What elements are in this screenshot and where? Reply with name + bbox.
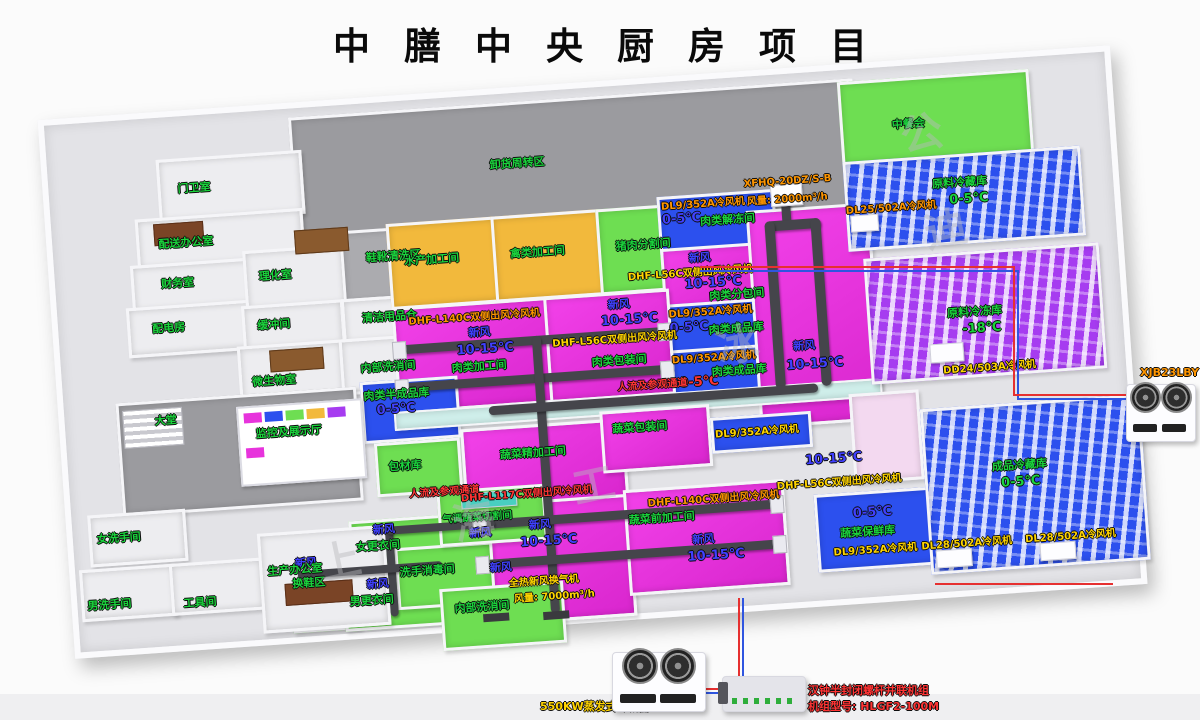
room-label-men-change: 男更衣间	[349, 590, 394, 609]
model-block-magenta2	[246, 447, 265, 458]
pipe-red-3	[1013, 394, 1128, 396]
fresh-air-4: 新风	[607, 295, 630, 312]
pipe-blue-2	[1017, 270, 1019, 398]
room-label-finance: 财务室	[161, 274, 195, 292]
pipe-red-5	[738, 598, 740, 678]
condenser-louver-2	[660, 694, 696, 703]
fresh-air-2: 新风	[793, 336, 816, 353]
eq-label-screw-model: 机组型号: HLGF2-100M	[808, 698, 939, 714]
fresh-air-3: 新风	[468, 323, 491, 340]
temp-finished-cold: 0-5℃	[1001, 473, 1041, 491]
room-label-tool: 工具间	[183, 593, 217, 611]
fresh-air-10: 新风	[489, 558, 512, 575]
room-label-micro: 微生物室	[252, 371, 297, 390]
display-model	[236, 398, 367, 487]
model-block-yellow	[306, 408, 325, 419]
temp-meat-semi: 0-5℃	[376, 400, 416, 418]
specimen-shelf	[269, 347, 324, 373]
room-label-women-change: 女更衣间	[355, 536, 400, 555]
screw-unit	[722, 676, 806, 712]
model-block-green	[285, 409, 304, 420]
temp-veg-store: 0-5℃	[852, 504, 892, 522]
pipe-red-1	[700, 266, 1015, 268]
room-label-women-wc: 女洗手间	[96, 528, 141, 547]
bookshelf	[294, 227, 350, 255]
pipe-red-4	[935, 583, 1113, 585]
eq-label-screw-unit: 汉钟半封闭螺杆并联机组	[808, 682, 929, 698]
dl25-unit	[850, 214, 879, 233]
model-block-blue	[264, 411, 283, 422]
pipe-blue-5	[742, 598, 744, 678]
room-men-wc	[79, 564, 178, 623]
floorplan: 卸货周转区 门卫室 配送办公室 财务室 配电房 理化室 缓冲间 微生物室 鞋靴清…	[37, 45, 1147, 659]
pipe-blue-1	[700, 270, 1019, 272]
condenser-fan-2	[660, 648, 696, 684]
fresh-air-9: 新风	[366, 575, 389, 592]
stage: 中膳中央厨房项目 卸货周转区 门卫室 配送办公室 财务室 配电房 理化室 缓冲间…	[0, 0, 1200, 720]
room-label-guard: 门卫室	[177, 178, 211, 196]
fresh-air-8: 新风	[372, 520, 395, 537]
xjb-louver-2	[1162, 424, 1186, 432]
condenser-fan-1	[622, 648, 658, 684]
xjb-fan-1	[1130, 382, 1161, 413]
room-label-lab: 理化室	[258, 266, 292, 284]
room-veg-pack	[599, 404, 713, 474]
screw-unit-cap	[718, 682, 728, 704]
room-label-pack-material: 包材库	[388, 456, 422, 474]
xjb-louver-1	[1133, 424, 1157, 432]
model-block-magenta	[243, 412, 262, 423]
condenser-louver-1	[620, 694, 656, 703]
room-label-buffer: 缓冲间	[257, 315, 291, 333]
fresh-air-6: 新风	[692, 530, 715, 547]
room-label-lobby: 大堂	[154, 411, 177, 428]
xjb-fan-2	[1161, 382, 1192, 413]
temp-thaw: 0-5℃	[661, 210, 701, 228]
pipe-red-2	[1013, 266, 1015, 396]
model-block-purple	[327, 406, 346, 417]
diffuser-8	[772, 535, 787, 554]
diffuser-7	[475, 556, 490, 575]
fresh-air-5: 新风	[528, 515, 551, 532]
room-label-power: 配电房	[152, 318, 186, 336]
room-label-men-wc: 男洗手间	[87, 595, 132, 614]
screw-unit-gauges	[732, 698, 796, 704]
pipe-blue-3	[1017, 398, 1128, 400]
temp-raw-freeze: -18℃	[962, 319, 1002, 337]
eq-label-xjb: XJB23LBY	[1140, 366, 1199, 379]
